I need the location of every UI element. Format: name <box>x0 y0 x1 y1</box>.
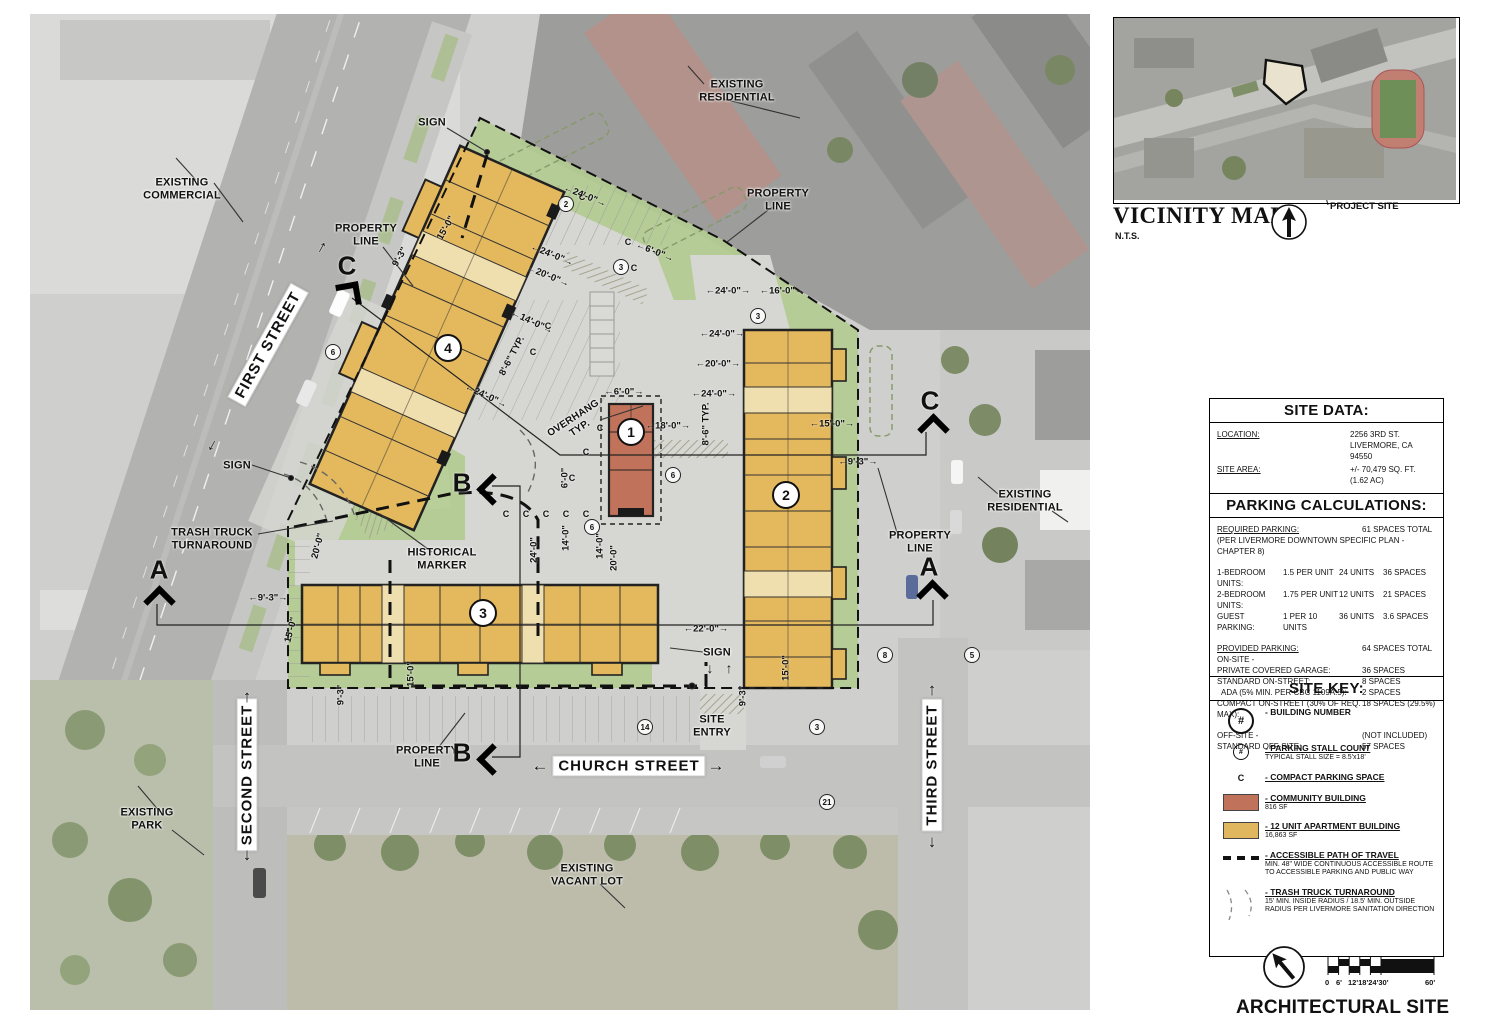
dimension: ←18'-0"→ <box>646 421 691 432</box>
dimension: 15'-0" <box>781 655 792 681</box>
dimension: 14'-0" <box>595 533 606 559</box>
key-item-building-number: # - BUILDING NUMBER <box>1217 707 1436 734</box>
data-panel: SITE DATA: LOCATION: 2256 3RD ST. LIVERM… <box>1209 398 1444 957</box>
vicinity-map-title: VICINITY MAP <box>1113 203 1285 229</box>
unit-count: 36 UNITS <box>1339 611 1383 633</box>
key-label: - 12 UNIT APARTMENT BUILDING <box>1265 821 1400 831</box>
vicinity-map <box>1113 17 1460 204</box>
sign-label: SIGN <box>703 646 731 659</box>
existing-residential-label: EXISTING RESIDENTIAL <box>699 79 775 106</box>
unit-rate: 1 PER 10 UNITS <box>1283 611 1339 633</box>
parking-label: PRIVATE COVERED GARAGE: <box>1217 665 1362 676</box>
building-number-symbol: # <box>1228 708 1254 734</box>
key-note: 15' MIN. INSIDE RADIUS / 18.5' MIN. OUTS… <box>1265 898 1436 915</box>
building-number: 3 <box>469 599 497 627</box>
stall-count: 2 <box>558 196 574 212</box>
entry-arrow-icon: ↓ <box>707 660 714 676</box>
dimension: 20'-0" <box>609 545 620 571</box>
vicinity-map-image <box>1114 18 1456 200</box>
scale-label: 6' <box>1336 978 1342 987</box>
unit-spaces: 21 SPACES <box>1383 589 1436 611</box>
parking-label: REQUIRED PARKING: <box>1217 524 1362 535</box>
third-street-label: THIRD STREET <box>922 698 943 831</box>
parking-calculations-header: PARKING CALCULATIONS: <box>1210 493 1443 518</box>
dimension: ←22'-0"→ <box>684 624 729 635</box>
unit-type: 2-BEDROOM UNITS: <box>1217 589 1283 611</box>
scale-label: 0 <box>1325 978 1329 987</box>
dimension: ←9'-3"→ <box>248 593 288 604</box>
scale-bar <box>1326 956 1436 976</box>
stall-count: 6 <box>665 467 681 483</box>
site-data-label: LOCATION: <box>1217 429 1350 462</box>
section-marker-b: B <box>453 738 472 769</box>
site-data-label: SITE AREA: <box>1217 464 1350 486</box>
stall-count: 3 <box>750 308 766 324</box>
site-entry-label: SITE ENTRY <box>693 714 731 741</box>
street-arrow-icon: ← <box>532 756 549 776</box>
key-item-community-building: - COMMUNITY BUILDING 816 SF <box>1217 793 1436 813</box>
street-arrow-icon: → <box>708 756 725 776</box>
historical-marker-label: HISTORICAL MARKER <box>407 547 476 574</box>
dimension: 8'-6" TYP. <box>701 402 712 445</box>
key-label: - COMMUNITY BUILDING <box>1265 793 1366 803</box>
building-number: 4 <box>434 334 462 362</box>
parking-value: 36 SPACES <box>1362 665 1436 676</box>
property-line-label: PROPERTY LINE <box>747 188 809 215</box>
site-data-body: LOCATION: 2256 3RD ST. LIVERMORE, CA 945… <box>1210 423 1443 493</box>
key-note: MIN. 48" WIDE CONTINUOUS ACCESSIBLE ROUT… <box>1265 861 1436 878</box>
dimension: 14'-0" <box>561 525 572 551</box>
compact-space-mark: C <box>543 509 550 519</box>
existing-vacant-lot-label: EXISTING VACANT LOT <box>551 863 623 890</box>
compact-space-mark: C <box>583 447 590 457</box>
dimension: ←16'-0"→ <box>760 286 805 297</box>
architectural-site-plan-sheet: SIGN EXISTING RESIDENTIAL PROPERTY LINE … <box>0 0 1494 1019</box>
key-item-trash-turnaround: - TRASH TRUCK TURNAROUND 15' MIN. INSIDE… <box>1217 887 1436 922</box>
compact-space-mark: C <box>530 347 537 357</box>
entry-arrow-icon: ↑ <box>726 660 733 676</box>
compact-space-mark: C <box>503 509 510 519</box>
parking-value: 64 SPACES TOTAL <box>1362 643 1436 654</box>
stall-count: 14 <box>637 719 653 735</box>
dimension: ←20'-0"→ <box>696 359 741 370</box>
key-label: - TRASH TRUCK TURNAROUND <box>1265 887 1395 897</box>
compact-space-mark: C <box>583 509 590 519</box>
street-arrow-icon: ↓ <box>243 845 252 865</box>
dimension: 9'-3" <box>336 685 347 706</box>
section-marker-c: C <box>921 386 940 417</box>
community-building-swatch <box>1223 794 1259 811</box>
compact-space-mark: C <box>563 509 570 519</box>
stall-count: 21 <box>819 794 835 810</box>
key-label: - BUILDING NUMBER <box>1265 707 1351 717</box>
sign-label: SIGN <box>223 459 251 472</box>
site-data-row: SITE AREA: +/- 70,479 SQ. FT. (1.62 AC) <box>1217 464 1436 486</box>
unit-type: 1-BEDROOM UNITS: <box>1217 567 1283 589</box>
site-data-value: +/- 70,479 SQ. FT. (1.62 AC) <box>1350 464 1436 486</box>
property-line-label: PROPERTY LINE <box>396 745 458 772</box>
site-data-row: LOCATION: 2256 3RD ST. LIVERMORE, CA 945… <box>1217 429 1436 462</box>
section-marker-a: A <box>920 552 939 583</box>
key-item-stall-count: # - PARKING STALL COUNT TYPICAL STALL SI… <box>1217 743 1436 763</box>
church-street-label: CHURCH STREET <box>552 756 705 777</box>
unit-count: 24 UNITS <box>1339 567 1383 589</box>
stall-count-symbol: # <box>1233 744 1249 760</box>
sheet-title: ARCHITECTURAL SITE PLAN <box>1236 997 1494 1019</box>
accessible-path-symbol <box>1223 856 1259 860</box>
street-arrow-icon: ↑ <box>928 680 937 700</box>
key-note: TYPICAL STALL SIZE = 8.5'x18' <box>1265 754 1436 763</box>
compact-space-mark: C <box>631 263 638 273</box>
compact-space-mark: C <box>597 423 604 433</box>
parking-unit-row: GUEST PARKING: 1 PER 10 UNITS 36 UNITS 3… <box>1217 611 1436 633</box>
section-arrow-icon <box>335 281 362 308</box>
plan-north-arrow-icon <box>1261 944 1307 990</box>
stall-count: 5 <box>964 647 980 663</box>
section-marker-a: A <box>150 555 169 586</box>
unit-spaces: 3.6 SPACES <box>1383 611 1436 633</box>
property-line-label: PROPERTY LINE <box>335 223 397 250</box>
parking-note: (PER LIVERMORE DOWNTOWN SPECIFIC PLAN - … <box>1217 535 1436 557</box>
parking-value: 2 SPACES <box>1362 687 1436 698</box>
scale-label: 12'18'24'30' <box>1348 978 1389 987</box>
site-data-header: SITE DATA: <box>1210 399 1443 423</box>
street-arrow-icon: ↑ <box>243 687 252 707</box>
dimension: ←24'-0"→ <box>706 286 751 297</box>
parking-value: 61 SPACES TOTAL <box>1362 524 1436 535</box>
trash-turnaround-symbol <box>1223 888 1259 922</box>
dimension: ←6'-0"→ <box>604 387 644 398</box>
existing-commercial-label: EXISTING COMMERCIAL <box>143 177 221 204</box>
compact-space-mark: C <box>523 509 530 519</box>
compact-symbol: C <box>1217 772 1265 784</box>
key-note: 16,863 SF <box>1265 832 1436 841</box>
unit-spaces: 36 SPACES <box>1383 567 1436 589</box>
stall-count: 8 <box>877 647 893 663</box>
dimension: ←24'-0"→ <box>692 389 737 400</box>
key-item-compact-space: C - COMPACT PARKING SPACE <box>1217 772 1436 784</box>
stall-count: 6 <box>325 344 341 360</box>
vicinity-map-scale-note: N.T.S. <box>1115 231 1140 241</box>
north-arrow-icon <box>1270 203 1308 241</box>
parking-calculations-body: REQUIRED PARKING: 61 SPACES TOTAL (PER L… <box>1210 518 1443 676</box>
project-site-label: PROJECT SITE <box>1330 201 1399 212</box>
street-arrow-icon: ↓ <box>928 832 937 852</box>
parking-value: 8 SPACES <box>1362 676 1436 687</box>
key-item-apartment-building: - 12 UNIT APARTMENT BUILDING 16,863 SF <box>1217 821 1436 841</box>
key-note: 816 SF <box>1265 804 1436 813</box>
building-number: 1 <box>617 418 645 446</box>
unit-count: 12 UNITS <box>1339 589 1383 611</box>
unit-type: GUEST PARKING: <box>1217 611 1283 633</box>
scale-label: 60' <box>1425 978 1435 987</box>
parking-unit-row: 2-BEDROOM UNITS: 1.75 PER UNIT 12 UNITS … <box>1217 589 1436 611</box>
apartment-building-swatch <box>1223 822 1259 839</box>
trash-truck-turnaround-label: TRASH TRUCK TURNAROUND <box>171 527 253 554</box>
key-label: - ACCESSIBLE PATH OF TRAVEL <box>1265 850 1399 860</box>
site-data-value: 2256 3RD ST. LIVERMORE, CA 94550 <box>1350 429 1436 462</box>
dimension: 9'-3" <box>738 686 749 707</box>
parking-row: PRIVATE COVERED GARAGE: 36 SPACES <box>1217 665 1436 676</box>
key-label: - PARKING STALL COUNT <box>1265 743 1370 753</box>
sign-label: SIGN <box>418 116 446 129</box>
existing-residential-label: EXISTING RESIDENTIAL <box>987 489 1063 516</box>
key-label: - COMPACT PARKING SPACE <box>1265 772 1384 782</box>
parking-row: PROVIDED PARKING: 64 SPACES TOTAL <box>1217 643 1436 654</box>
dimension: 24'-0" <box>529 537 540 563</box>
parking-row: REQUIRED PARKING: 61 SPACES TOTAL <box>1217 524 1436 535</box>
unit-rate: 1.5 PER UNIT <box>1283 567 1339 589</box>
unit-rate: 1.75 PER UNIT <box>1283 589 1339 611</box>
parking-label: PROVIDED PARKING: <box>1217 643 1362 654</box>
key-item-accessible-path: - ACCESSIBLE PATH OF TRAVEL MIN. 48" WID… <box>1217 850 1436 878</box>
section-marker-c: C <box>338 251 357 282</box>
stall-count: 3 <box>613 259 629 275</box>
dimension: ←9'-3"→ <box>838 457 878 468</box>
parking-unit-row: 1-BEDROOM UNITS: 1.5 PER UNIT 24 UNITS 3… <box>1217 567 1436 589</box>
dimension: ←24'-0"→ <box>700 329 745 340</box>
stall-count: 3 <box>809 719 825 735</box>
section-marker-b: B <box>453 468 472 499</box>
parking-subheader: ON-SITE - <box>1217 654 1436 665</box>
second-street-label: SECOND STREET <box>237 699 258 852</box>
compact-space-mark: C <box>625 237 632 247</box>
dimension: 6'-0" <box>560 468 571 489</box>
existing-park-label: EXISTING PARK <box>121 807 174 834</box>
building-number: 2 <box>772 481 800 509</box>
dimension: 15'-0" <box>406 661 417 687</box>
dimension: ←15'-0"→ <box>810 419 855 430</box>
